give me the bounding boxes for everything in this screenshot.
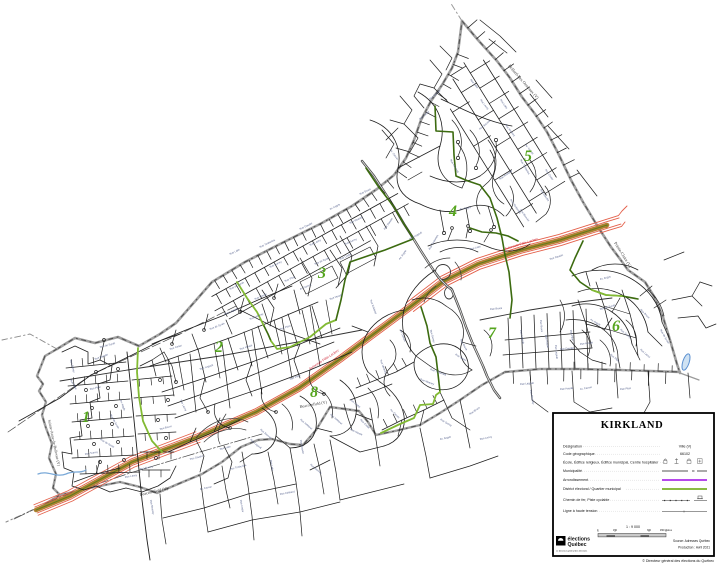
svg-text:Arrondissement: Arrondissement [563, 478, 588, 482]
svg-text:5: 5 [524, 148, 532, 165]
svg-text:Ligne à haute tension: Ligne à haute tension [563, 509, 597, 513]
svg-text:2: 2 [214, 339, 223, 356]
svg-text:4: 4 [448, 203, 457, 220]
svg-text:Ville (V): Ville (V) [679, 445, 692, 449]
svg-text:KIRKLAND: KIRKLAND [601, 420, 664, 431]
svg-text:District électoral / Quartier: District électoral / Quartier municipal [563, 487, 621, 491]
svg-text:Municipalité: Municipalité [563, 469, 582, 473]
svg-text:1 : 9 000: 1 : 9 000 [626, 525, 640, 529]
svg-text:300: 300 [647, 529, 652, 532]
svg-text:Québec: Québec [568, 542, 587, 548]
svg-text:Désignation: Désignation [563, 445, 582, 449]
svg-text:École, Édifice religieux, Édif: École, Édifice religieux, Édifice munici… [563, 460, 659, 465]
svg-text:150: 150 [613, 529, 618, 532]
svg-text:3: 3 [317, 265, 326, 282]
svg-text:7: 7 [488, 325, 497, 342]
svg-text:Le directeur général des élect: Le directeur général des élections [556, 550, 587, 553]
svg-text:Source: Adresses Québec: Source: Adresses Québec [673, 539, 710, 543]
svg-text:Code géographique: Code géographique [563, 452, 595, 456]
svg-text:© Directeur général des électi: © Directeur général des élections du Qué… [642, 559, 714, 563]
svg-text:Chemin de fer, Piste cyclable: Chemin de fer, Piste cyclable [563, 498, 609, 502]
svg-text:6: 6 [612, 318, 620, 335]
svg-text:66102: 66102 [680, 452, 690, 456]
svg-text:1: 1 [82, 409, 90, 426]
svg-text:Production : Avril 2021: Production : Avril 2021 [678, 546, 710, 550]
svg-text:450 Mètres: 450 Mètres [660, 529, 673, 532]
svg-text:8: 8 [310, 384, 318, 401]
